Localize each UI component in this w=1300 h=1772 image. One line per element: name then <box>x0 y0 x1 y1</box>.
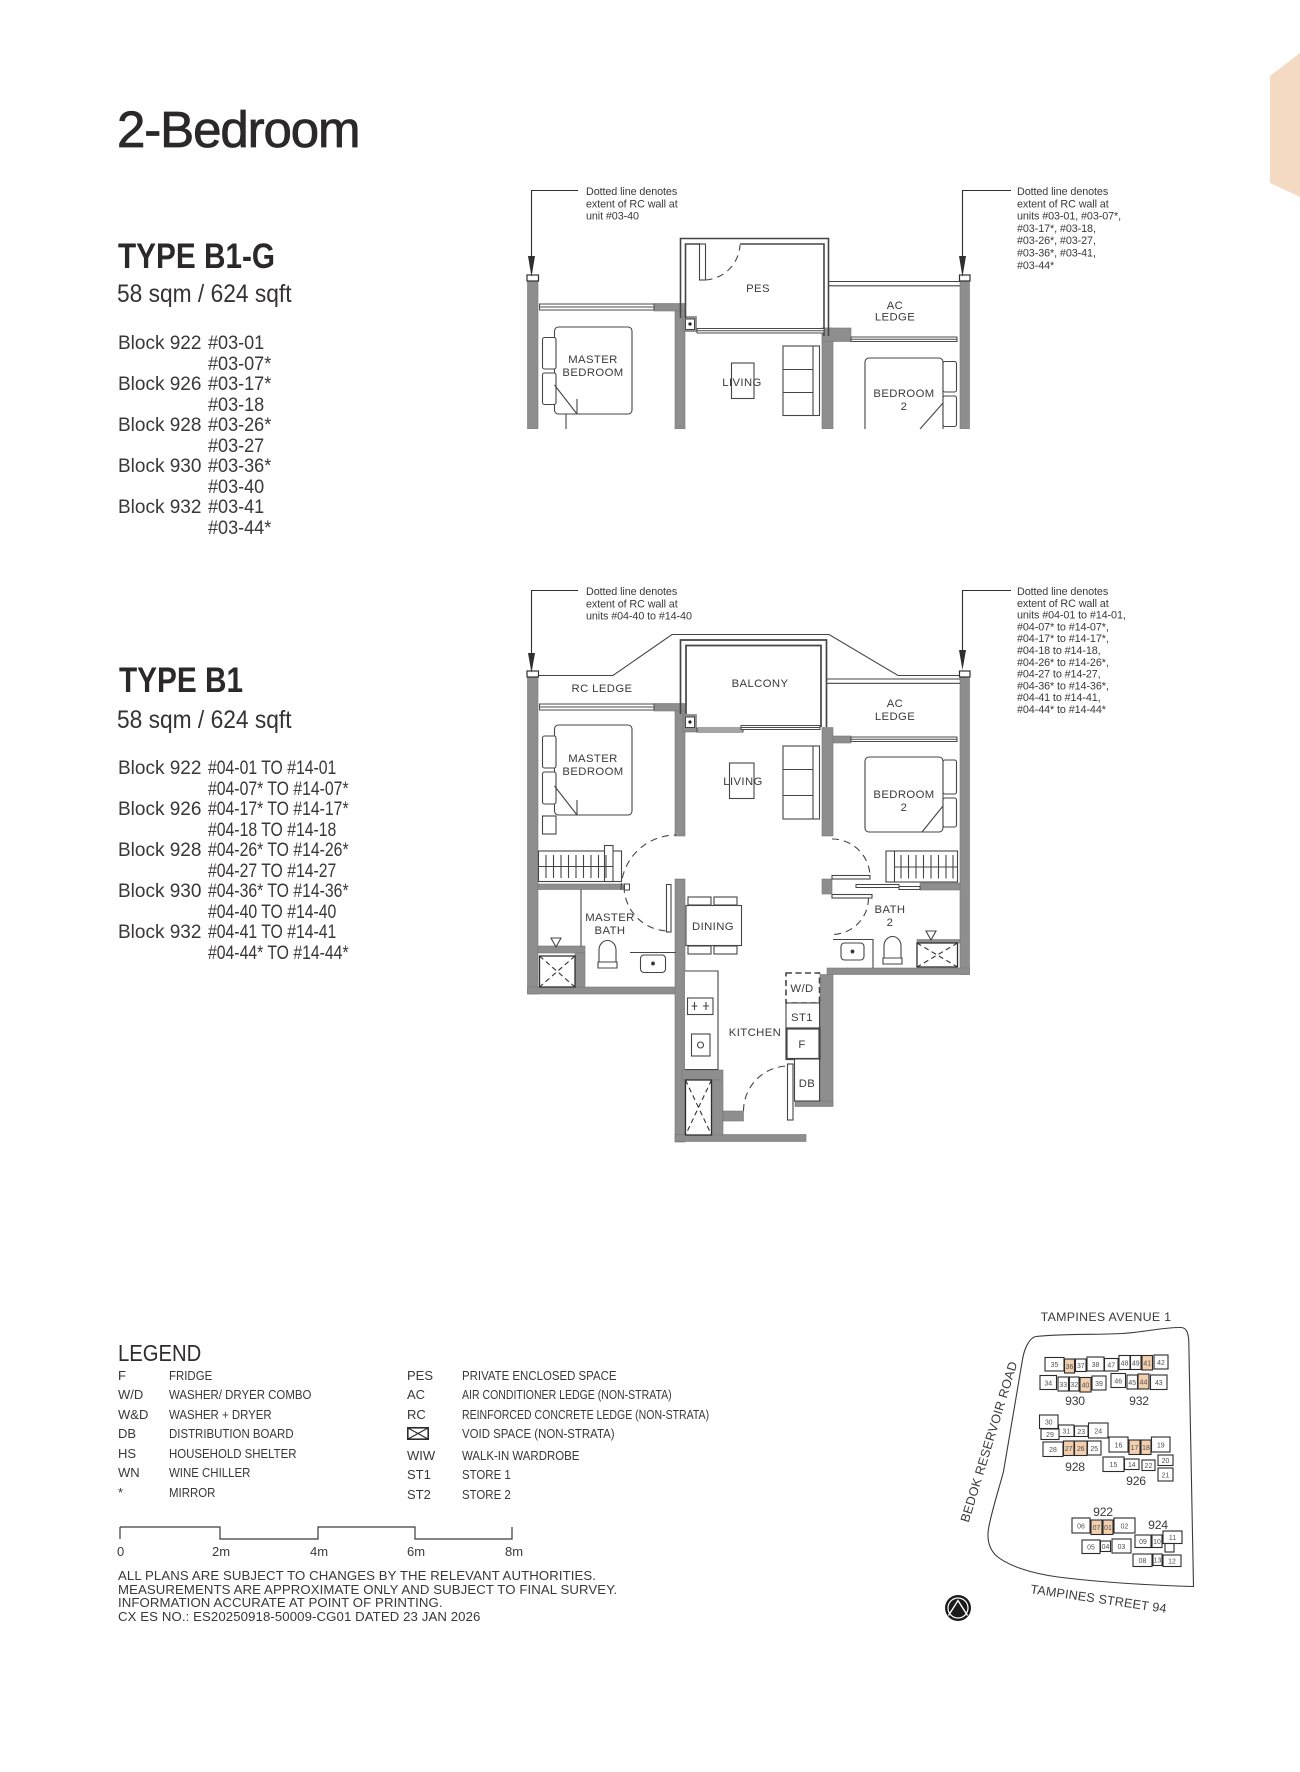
svg-text:02: 02 <box>1121 1523 1129 1530</box>
svg-text:48: 48 <box>1121 1360 1129 1367</box>
svg-text:14: 14 <box>1128 1462 1136 1469</box>
svg-text:18: 18 <box>1142 1445 1150 1452</box>
svg-text:21: 21 <box>1162 1472 1170 1479</box>
svg-text:BEDROOM: BEDROOM <box>562 367 623 379</box>
svg-text:08: 08 <box>1139 1558 1147 1565</box>
svg-text:#04-27 to #14-27,: #04-27 to #14-27, <box>1017 669 1101 681</box>
svg-text:#03-36*, #03-41,: #03-36*, #03-41, <box>1017 248 1096 260</box>
svg-text:PES: PES <box>746 283 770 295</box>
svg-text:31: 31 <box>1062 1429 1070 1436</box>
svg-text:BEDROOM: BEDROOM <box>562 766 623 778</box>
svg-text:units #03-01, #03-07*,: units #03-01, #03-07*, <box>1017 211 1121 223</box>
svg-text:38: 38 <box>1092 1362 1100 1369</box>
svg-text:LEDGE: LEDGE <box>875 312 915 324</box>
svg-text:2: 2 <box>887 917 894 929</box>
svg-text:LIVING: LIVING <box>723 776 762 788</box>
svg-text:units #04-01 to #14-01,: units #04-01 to #14-01, <box>1017 610 1126 622</box>
svg-text:15: 15 <box>1110 1462 1118 1469</box>
svg-text:LIVING: LIVING <box>722 377 761 389</box>
svg-text:Dotted line denotes: Dotted line denotes <box>586 186 678 198</box>
svg-text:35: 35 <box>1051 1362 1059 1369</box>
svg-text:#03-17*, #03-18,: #03-17*, #03-18, <box>1017 223 1096 235</box>
svg-text:37: 37 <box>1077 1363 1085 1370</box>
svg-text:17: 17 <box>1131 1445 1139 1452</box>
svg-text:#04-36* to #14-36*,: #04-36* to #14-36*, <box>1017 680 1109 692</box>
svg-text:LEDGE: LEDGE <box>875 711 915 723</box>
svg-text:05: 05 <box>1087 1545 1095 1552</box>
svg-text:#04-44* to #14-44*: #04-44* to #14-44* <box>1017 704 1107 716</box>
svg-text:11: 11 <box>1169 1535 1176 1542</box>
svg-text:07: 07 <box>1093 1525 1101 1532</box>
svg-text:39: 39 <box>1095 1381 1103 1388</box>
svg-text:47: 47 <box>1107 1363 1115 1370</box>
svg-text:26: 26 <box>1077 1446 1085 1453</box>
svg-text:33: 33 <box>1059 1382 1067 1389</box>
svg-text:extent of RC wall at: extent of RC wall at <box>586 198 678 210</box>
svg-text:4m: 4m <box>310 1544 328 1559</box>
svg-text:49: 49 <box>1132 1360 1140 1367</box>
svg-text:45: 45 <box>1128 1380 1136 1387</box>
svg-text:AC: AC <box>887 300 904 312</box>
svg-text:#04-18 to #14-18,: #04-18 to #14-18, <box>1017 645 1101 657</box>
svg-text:F: F <box>798 1039 805 1051</box>
svg-text:932: 932 <box>1129 1394 1149 1408</box>
svg-text:BEDOK RESERVOIR ROAD: BEDOK RESERVOIR ROAD <box>958 1360 1020 1524</box>
svg-text:ST1: ST1 <box>791 1012 813 1024</box>
svg-text:#03-44*: #03-44* <box>1017 260 1055 272</box>
svg-text:KITCHEN: KITCHEN <box>729 1027 781 1039</box>
svg-text:2: 2 <box>901 802 908 814</box>
svg-text:03: 03 <box>1118 1544 1126 1551</box>
svg-text:922: 922 <box>1093 1505 1113 1519</box>
svg-text:19: 19 <box>1157 1442 1165 1449</box>
svg-text:44: 44 <box>1140 1379 1148 1386</box>
svg-text:extent of RC wall at: extent of RC wall at <box>586 598 678 610</box>
svg-text:27: 27 <box>1065 1446 1073 1453</box>
svg-text:43: 43 <box>1155 1380 1163 1387</box>
svg-text:06: 06 <box>1077 1523 1085 1530</box>
svg-text:928: 928 <box>1065 1460 1085 1474</box>
svg-text:units #04-40 to #14-40: units #04-40 to #14-40 <box>586 611 692 623</box>
svg-text:Dotted line denotes: Dotted line denotes <box>586 586 678 598</box>
svg-text:2: 2 <box>901 401 908 413</box>
svg-text:#04-41 to #14-41,: #04-41 to #14-41, <box>1017 692 1101 704</box>
svg-text:12: 12 <box>1168 1559 1176 1566</box>
svg-text:BATH: BATH <box>875 904 906 916</box>
svg-text:25: 25 <box>1090 1446 1098 1453</box>
svg-text:29: 29 <box>1046 1432 1054 1439</box>
svg-text:36: 36 <box>1066 1364 1074 1371</box>
svg-text:01: 01 <box>1104 1525 1112 1532</box>
svg-text:BEDROOM: BEDROOM <box>873 789 934 801</box>
svg-text:23: 23 <box>1077 1429 1085 1436</box>
svg-text:28: 28 <box>1049 1447 1057 1454</box>
svg-text:34: 34 <box>1044 1380 1052 1387</box>
svg-text:BATH: BATH <box>595 925 626 937</box>
svg-text:MASTER: MASTER <box>568 354 617 366</box>
svg-text:RC LEDGE: RC LEDGE <box>572 683 633 695</box>
svg-text:6m: 6m <box>407 1544 425 1559</box>
svg-text:16: 16 <box>1115 1442 1123 1449</box>
svg-text:DB: DB <box>799 1078 816 1090</box>
svg-text:32: 32 <box>1070 1382 1078 1389</box>
svg-text:extent of RC wall at: extent of RC wall at <box>1017 198 1109 210</box>
svg-text:22: 22 <box>1145 1463 1153 1470</box>
svg-text:Dotted line denotes: Dotted line denotes <box>1017 186 1109 198</box>
svg-text:20: 20 <box>1162 1458 1170 1465</box>
svg-text:13: 13 <box>1154 1558 1162 1565</box>
svg-text:24: 24 <box>1094 1428 1102 1435</box>
svg-text:DINING: DINING <box>692 921 734 933</box>
svg-text:#04-07* to #14-07*,: #04-07* to #14-07*, <box>1017 621 1109 633</box>
svg-text:MASTER: MASTER <box>585 912 634 924</box>
svg-text:04: 04 <box>1102 1544 1110 1551</box>
svg-text:41: 41 <box>1143 1361 1151 1368</box>
svg-text:Dotted line denotes: Dotted line denotes <box>1017 586 1109 598</box>
svg-text:926: 926 <box>1126 1474 1146 1488</box>
svg-text:09: 09 <box>1139 1539 1147 1546</box>
svg-text:W/D: W/D <box>790 983 813 995</box>
svg-text:0: 0 <box>117 1544 124 1559</box>
svg-text:MASTER: MASTER <box>568 753 617 765</box>
svg-text:TAMPINES STREET 94: TAMPINES STREET 94 <box>1030 1582 1168 1616</box>
svg-text:30: 30 <box>1045 1420 1053 1427</box>
svg-text:10: 10 <box>1153 1539 1161 1546</box>
svg-text:unit #03-40: unit #03-40 <box>586 211 639 223</box>
svg-text:42: 42 <box>1157 1360 1165 1367</box>
svg-text:2m: 2m <box>212 1544 230 1559</box>
svg-text:extent of RC wall at: extent of RC wall at <box>1017 598 1109 610</box>
svg-text:AC: AC <box>887 698 904 710</box>
svg-text:930: 930 <box>1065 1394 1085 1408</box>
svg-text:46: 46 <box>1114 1378 1122 1385</box>
svg-text:#04-17* to #14-17*,: #04-17* to #14-17*, <box>1017 633 1109 645</box>
svg-text:#03-26*, #03-27,: #03-26*, #03-27, <box>1017 235 1096 247</box>
svg-text:TAMPINES AVENUE 1: TAMPINES AVENUE 1 <box>1041 1310 1172 1324</box>
svg-text:#04-26* to #14-26*,: #04-26* to #14-26*, <box>1017 657 1109 669</box>
svg-text:924: 924 <box>1148 1518 1168 1532</box>
svg-text:40: 40 <box>1082 1383 1090 1390</box>
svg-text:BEDROOM: BEDROOM <box>873 388 934 400</box>
svg-text:BALCONY: BALCONY <box>732 678 789 690</box>
svg-text:8m: 8m <box>505 1544 523 1559</box>
